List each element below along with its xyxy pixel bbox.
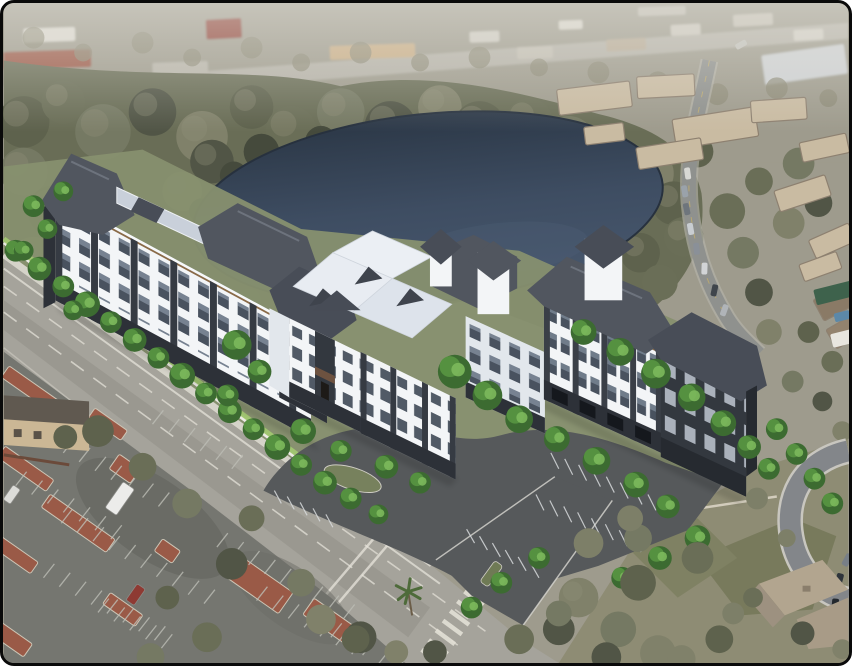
tree-canopy-highlight <box>418 477 427 486</box>
olive-tree-blob <box>620 565 656 601</box>
tree-canopy-highlight <box>689 390 700 401</box>
tree-canopy-highlight <box>227 405 237 415</box>
tree-canopy-highlight <box>31 200 40 209</box>
olive-tree-blob <box>617 505 643 531</box>
olive-tree-blob <box>129 453 157 481</box>
tree-canopy-highlight <box>156 352 165 361</box>
olive-tree-blob <box>727 237 759 269</box>
house-chimney <box>803 586 811 592</box>
tree-canopy-highlight <box>301 424 311 434</box>
olive-tree-blob <box>53 425 77 449</box>
tree-canopy-highlight <box>484 388 496 400</box>
clubhouse-side-wall <box>269 308 289 397</box>
tan-building-window <box>14 429 22 437</box>
tree-canopy-highlight <box>665 500 675 510</box>
rendering-frame: Aerial rendering of a proposed four-stor… <box>0 0 852 666</box>
stamped-rect <box>701 263 707 275</box>
olive-tree-blob <box>782 371 804 393</box>
tree-canopy-highlight <box>299 459 308 468</box>
tree-canopy-highlight <box>581 325 591 335</box>
tree-canopy-highlight <box>775 423 784 432</box>
olive-tree-blob <box>778 529 796 547</box>
olive-tree-highlight <box>195 144 217 166</box>
olive-tree-blob <box>172 489 202 519</box>
olive-tree-blob <box>574 528 604 558</box>
tree-canopy-highlight <box>226 390 235 399</box>
olive-tree-blob <box>384 640 408 663</box>
tree-canopy-highlight <box>812 473 821 482</box>
tree-canopy-highlight <box>516 412 527 423</box>
olive-tree-blob <box>791 621 815 645</box>
tree-canopy-highlight <box>234 337 246 349</box>
tree-canopy-highlight <box>657 552 667 562</box>
tree-canopy-highlight <box>469 602 478 611</box>
tree-canopy-highlight <box>499 577 508 586</box>
olive-tree-blob <box>746 488 768 510</box>
tree-canopy-highlight <box>554 432 564 442</box>
olive-tree-blob <box>709 193 745 229</box>
olive-tree-blob <box>216 548 248 580</box>
tree-canopy-highlight <box>204 388 213 397</box>
olive-tree-blob <box>239 505 265 531</box>
tree-canopy-highlight <box>61 186 69 194</box>
tree-canopy-highlight <box>537 552 546 561</box>
tree-canopy-highlight <box>257 365 267 375</box>
tree-canopy-highlight <box>451 363 464 376</box>
tree-canopy-highlight <box>85 298 95 308</box>
olive-tree-blob <box>798 321 820 343</box>
olive-tree-blob <box>745 278 773 306</box>
tree-canopy-highlight <box>594 454 605 465</box>
olive-tree-blob <box>705 625 733 653</box>
olive-tree-blob <box>832 421 849 441</box>
tree-canopy-highlight <box>384 461 394 471</box>
olive-tree-blob <box>342 625 370 653</box>
charcoal-end-wall <box>746 386 757 477</box>
olive-tree-blob <box>306 605 336 635</box>
tree-canopy-highlight <box>22 246 30 254</box>
tree-canopy-highlight <box>323 476 333 486</box>
tree-canopy-highlight <box>180 369 190 379</box>
tree-canopy-highlight <box>376 509 384 517</box>
tree-canopy-highlight <box>132 334 142 344</box>
tree-canopy-highlight <box>653 366 665 378</box>
olive-tree-blob <box>682 542 714 574</box>
stamped-rect <box>693 243 700 255</box>
aerial-rendering: Aerial rendering of a proposed four-stor… <box>3 3 849 663</box>
olive-tree-blob <box>423 640 447 663</box>
olive-tree-blob <box>745 168 773 196</box>
olive-tree-blob <box>722 603 744 625</box>
tree-canopy-highlight <box>794 448 803 457</box>
olive-tree-blob <box>743 588 763 608</box>
tree-canopy-highlight <box>695 531 705 541</box>
tree-canopy-highlight <box>721 416 731 426</box>
olive-tree-blob <box>812 391 832 411</box>
olive-tree-blob <box>82 415 114 447</box>
olive-tree-blob <box>821 351 843 373</box>
tree-canopy-highlight <box>349 493 358 502</box>
tree-canopy-highlight <box>61 281 70 290</box>
tree-canopy-highlight <box>617 345 628 356</box>
olive-tree-blob <box>504 624 534 654</box>
tree-canopy-highlight <box>634 478 644 488</box>
olive-tree-blob <box>155 586 179 610</box>
tree-canopy-highlight <box>45 224 53 232</box>
olive-tree-blob <box>756 319 782 345</box>
atmospheric-haze <box>4 3 848 132</box>
tree-canopy-highlight <box>251 423 260 432</box>
olive-tree-blob <box>773 207 805 239</box>
olive-tree-highlight <box>563 581 583 601</box>
olive-tree-blob <box>546 601 572 627</box>
tree-canopy-highlight <box>275 440 285 450</box>
tree-canopy-highlight <box>71 305 79 313</box>
tree-canopy-highlight <box>109 316 118 325</box>
tree-canopy-highlight <box>339 445 348 454</box>
tree-canopy-highlight <box>767 463 776 472</box>
tree-canopy-highlight <box>747 441 757 451</box>
tan-building-window <box>34 431 42 439</box>
olive-tree-blob <box>287 569 315 597</box>
olive-tree-blob <box>600 611 636 647</box>
stamped-rect <box>808 223 849 259</box>
tree-canopy-highlight <box>830 498 839 507</box>
tree-canopy-highlight <box>37 262 47 272</box>
olive-tree-blob <box>192 622 222 652</box>
